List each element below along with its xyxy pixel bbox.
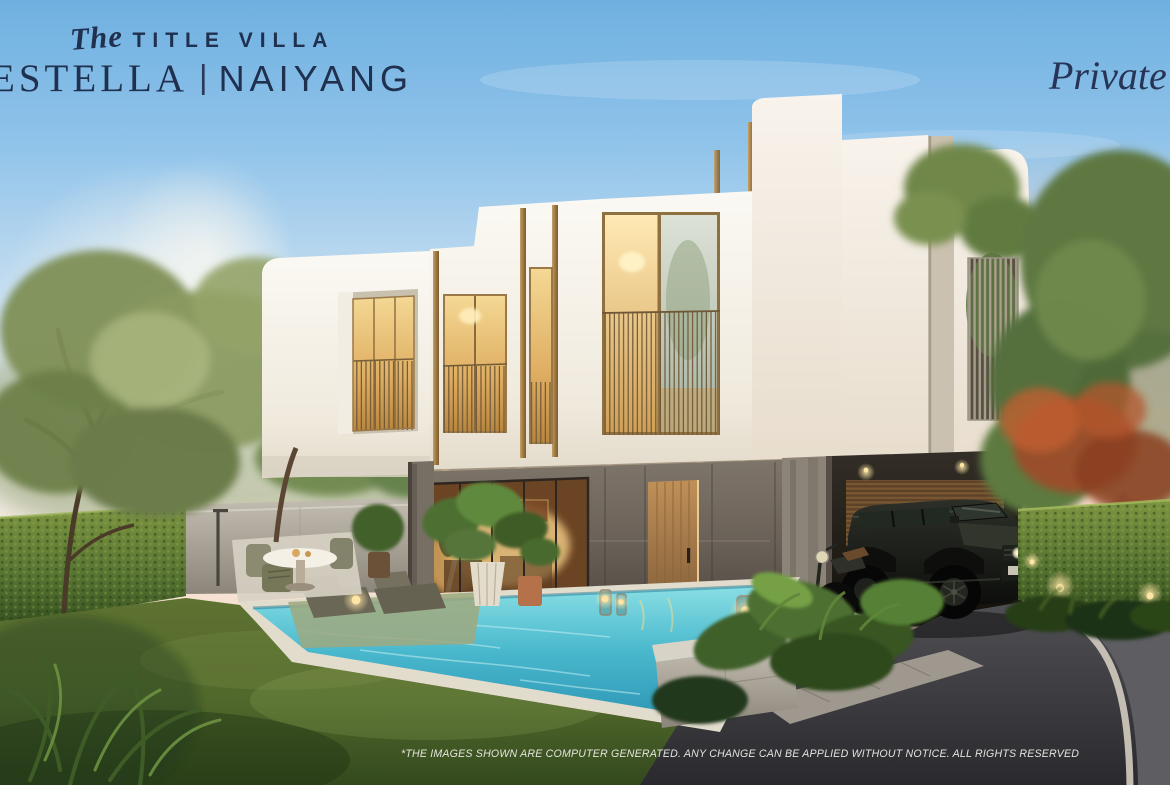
logo-project-name: ESTELLA	[0, 59, 188, 98]
brand-logo: The TITLE VILLA ESTELLA | NAIYANG	[30, 22, 374, 98]
logo-line1: The TITLE VILLA	[30, 22, 374, 53]
marketing-render: { "branding": { "prefix": "The", "title"…	[0, 0, 1170, 785]
logo-prefix: The	[69, 20, 124, 55]
window-a	[443, 294, 507, 433]
window-big	[602, 212, 720, 435]
tower	[752, 94, 842, 462]
logo-divider: |	[188, 60, 219, 93]
logo-location-name: NAIYANG	[219, 61, 413, 97]
hedge-right	[1005, 500, 1170, 640]
disclaimer-text: *THE IMAGES SHOWN ARE COMPUTER GENERATED…	[401, 748, 1079, 760]
logo-title: TITLE VILLA	[133, 30, 335, 53]
villa-scene	[0, 0, 1170, 785]
tagline-private: Private	[1049, 52, 1167, 99]
logo-line2: ESTELLA | NAIYANG	[30, 59, 374, 98]
window-b	[529, 267, 553, 444]
wing-window	[338, 289, 418, 435]
